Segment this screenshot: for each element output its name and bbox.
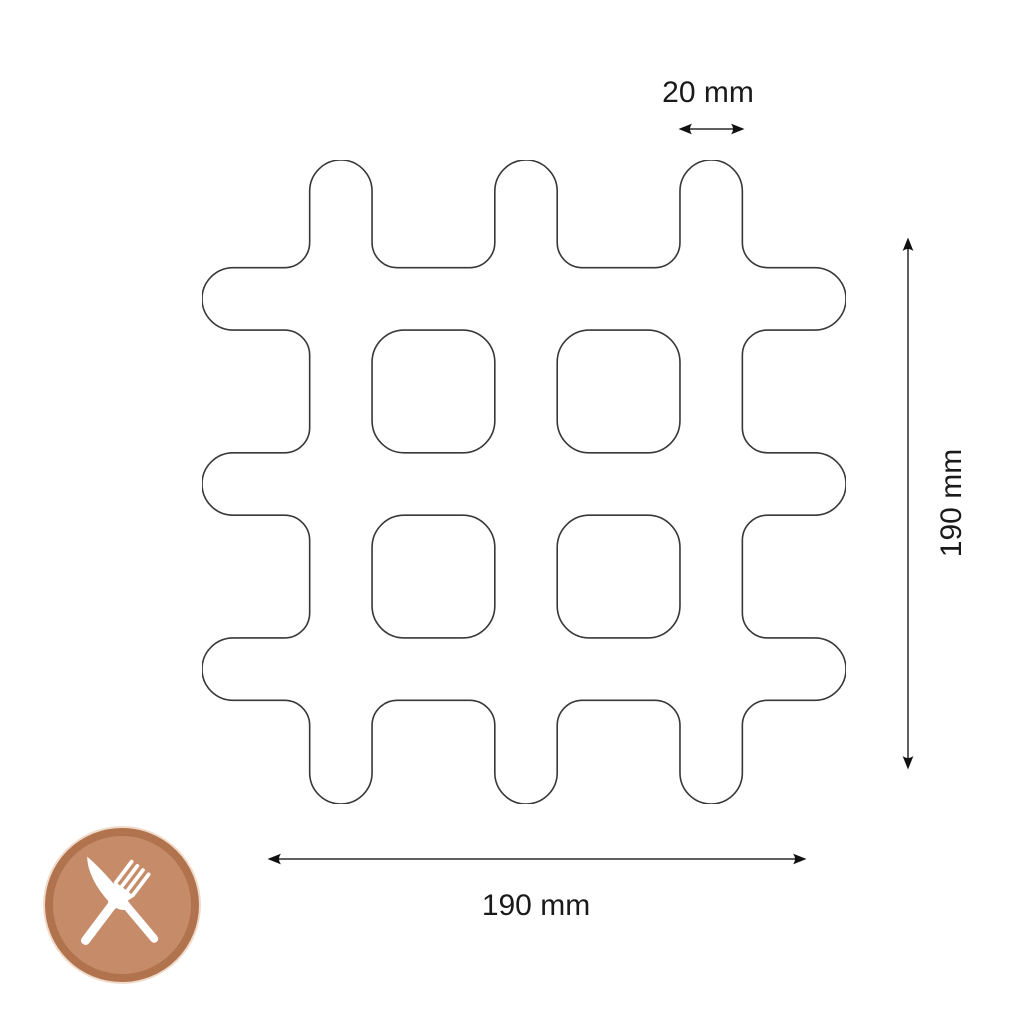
trivet-hole [557,515,680,638]
trivet-hole [372,330,495,453]
width-arrow [267,852,807,866]
trivet-outline-path [202,160,846,804]
bar-width-dimension: 20 mm [608,76,808,110]
bar-width-arrow [678,122,745,136]
height-arrow [901,237,915,770]
height-label: 190 mm [935,403,969,603]
trivet-hole [557,330,680,453]
product-dimension-diagram: 20 mm 190 mm 190 mm [0,0,1024,1024]
height-dimension: 190 mm [935,403,969,603]
cutlery-badge [40,823,204,987]
trivet-outline-svg [202,160,846,804]
bar-width-label: 20 mm [608,76,808,110]
trivet-hole [372,515,495,638]
width-dimension: 190 mm [436,889,636,923]
width-label: 190 mm [436,889,636,923]
